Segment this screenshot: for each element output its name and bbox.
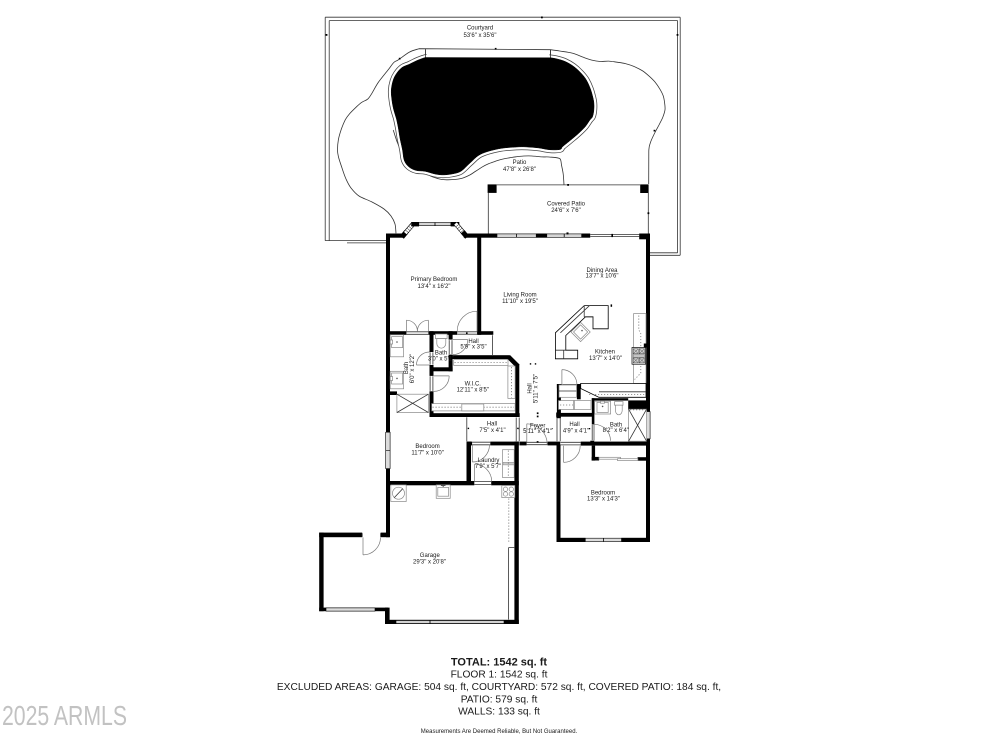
svg-text:EXCLUDED AREAS: GARAGE: 504 sq: EXCLUDED AREAS: GARAGE: 504 sq. ft, COUR…: [277, 682, 721, 693]
svg-text:13'4" x 16'2": 13'4" x 16'2": [418, 284, 451, 290]
svg-text:11'10" x 19'5": 11'10" x 19'5": [502, 299, 538, 305]
svg-text:3'0" x 5'1": 3'0" x 5'1": [428, 356, 454, 362]
svg-text:13'7" x 14'0": 13'7" x 14'0": [589, 356, 622, 362]
svg-text:Hall: Hall: [569, 422, 579, 428]
svg-text:Measurements Are Deemed Reliab: Measurements Are Deemed Reliable, But No…: [421, 729, 578, 735]
svg-text:Bedroom: Bedroom: [415, 444, 439, 450]
svg-text:5'11" x 4'1": 5'11" x 4'1": [523, 429, 552, 435]
svg-text:7'5" x 4'1": 7'5" x 4'1": [479, 428, 505, 434]
svg-text:8'2" x 6'4": 8'2" x 6'4": [603, 428, 629, 434]
svg-text:WALLS: 133 sq. ft: WALLS: 133 sq. ft: [458, 707, 540, 718]
svg-text:24'6" x 7'6": 24'6" x 7'6": [551, 208, 581, 214]
svg-text:Covered Patio: Covered Patio: [547, 202, 586, 208]
svg-text:Patio: Patio: [513, 160, 527, 166]
svg-text:11'7" x 10'0": 11'7" x 10'0": [411, 451, 443, 457]
svg-text:Courtyard: Courtyard: [467, 26, 493, 32]
svg-text:Hall: Hall: [487, 422, 497, 428]
svg-text:PATIO: 579 sq. ft: PATIO: 579 sq. ft: [461, 695, 538, 706]
svg-text:47'8" x 26'8": 47'8" x 26'8": [503, 167, 536, 173]
svg-text:5'9" x 3'5": 5'9" x 3'5": [460, 345, 486, 351]
svg-text:29'3" x 20'8": 29'3" x 20'8": [413, 560, 446, 566]
svg-text:4'9" x 4'1": 4'9" x 4'1": [563, 429, 589, 435]
svg-text:13'3" x 14'3": 13'3" x 14'3": [587, 497, 620, 503]
svg-text:Primary Bedroom: Primary Bedroom: [411, 277, 458, 283]
svg-text:5'11" x 7'5": 5'11" x 7'5": [534, 374, 540, 403]
svg-text:13'7" x 10'6": 13'7" x 10'6": [586, 274, 619, 280]
svg-text:2025 ARMLS: 2025 ARMLS: [2, 700, 127, 731]
svg-text:53'6" x 35'6": 53'6" x 35'6": [464, 33, 497, 39]
svg-text:7'9" x 5'7": 7'9" x 5'7": [475, 464, 501, 470]
svg-text:Kitchen: Kitchen: [595, 350, 615, 356]
svg-text:Garage: Garage: [420, 553, 441, 559]
svg-text:FLOOR 1: 1542 sq. ft: FLOOR 1: 1542 sq. ft: [451, 670, 548, 681]
svg-text:TOTAL: 1542 sq. ft: TOTAL: 1542 sq. ft: [451, 657, 548, 669]
svg-text:Living Room: Living Room: [503, 293, 536, 299]
svg-text:12'11" x 8'5": 12'11" x 8'5": [457, 387, 489, 393]
svg-text:6'0" x 12'2": 6'0" x 12'2": [410, 354, 416, 384]
